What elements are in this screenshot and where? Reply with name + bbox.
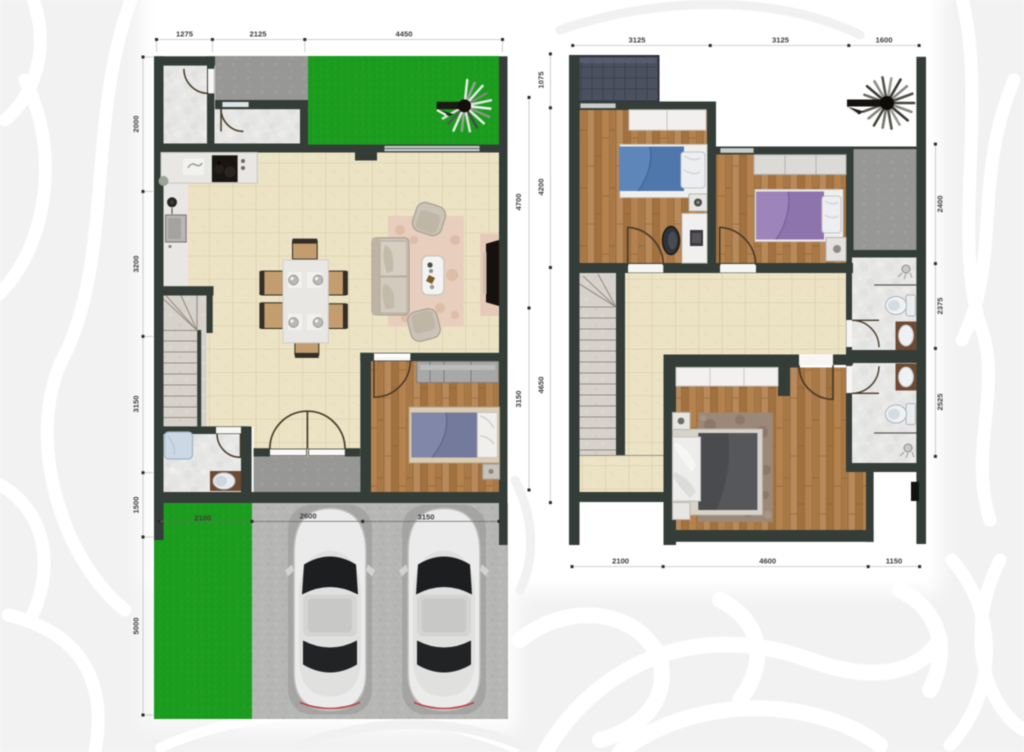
svg-text:4600: 4600 xyxy=(759,557,776,566)
svg-text:2525: 2525 xyxy=(936,393,945,411)
svg-text:1275: 1275 xyxy=(176,30,194,39)
svg-text:2100: 2100 xyxy=(612,557,629,566)
svg-text:2600: 2600 xyxy=(300,512,317,521)
svg-text:3150: 3150 xyxy=(514,391,523,408)
svg-text:5000: 5000 xyxy=(132,618,141,635)
svg-text:3125: 3125 xyxy=(772,36,790,45)
svg-text:2400: 2400 xyxy=(936,196,945,213)
svg-text:4200: 4200 xyxy=(537,179,546,196)
svg-text:3150: 3150 xyxy=(418,513,435,522)
svg-text:1075: 1075 xyxy=(537,71,546,89)
svg-text:3125: 3125 xyxy=(629,36,647,45)
svg-text:1600: 1600 xyxy=(876,36,893,45)
svg-text:4700: 4700 xyxy=(514,194,523,211)
svg-text:4450: 4450 xyxy=(396,30,413,39)
svg-text:1150: 1150 xyxy=(886,557,902,566)
svg-text:3150: 3150 xyxy=(132,396,141,413)
svg-text:2000: 2000 xyxy=(132,116,141,133)
svg-text:2125: 2125 xyxy=(250,30,268,39)
svg-text:4650: 4650 xyxy=(537,377,546,394)
svg-text:2375: 2375 xyxy=(936,297,945,315)
svg-text:3200: 3200 xyxy=(132,256,141,273)
svg-text:2100: 2100 xyxy=(194,514,211,523)
svg-text:1500: 1500 xyxy=(132,497,141,514)
